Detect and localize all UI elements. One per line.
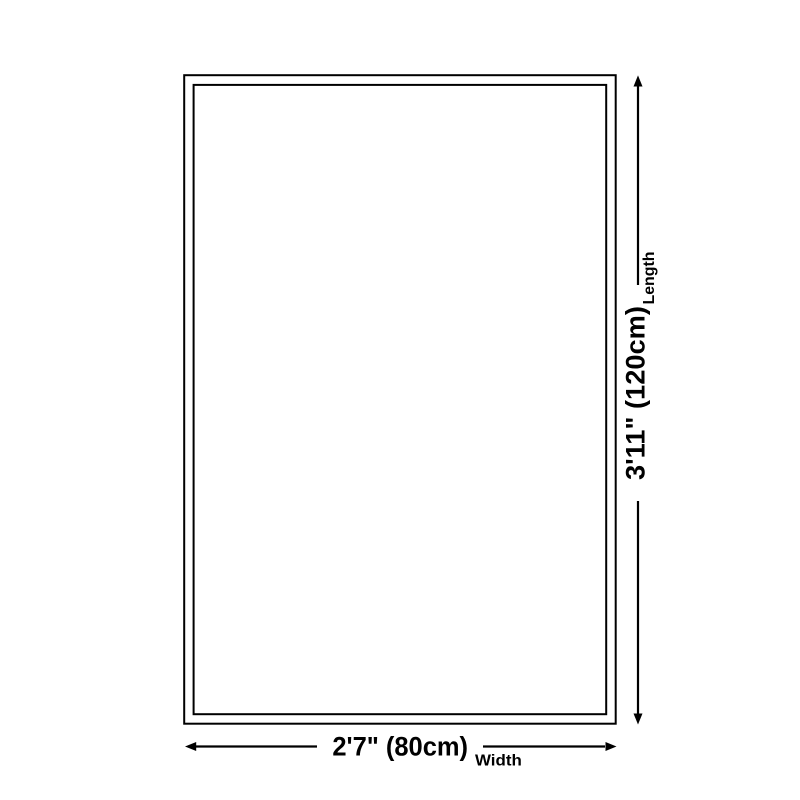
svg-text:2'7" (80cm): 2'7" (80cm) [332, 732, 468, 762]
svg-text:Length: Length [641, 252, 658, 305]
svg-text:3'11" (120cm): 3'11" (120cm) [621, 306, 651, 480]
svg-text:Width: Width [475, 753, 522, 770]
